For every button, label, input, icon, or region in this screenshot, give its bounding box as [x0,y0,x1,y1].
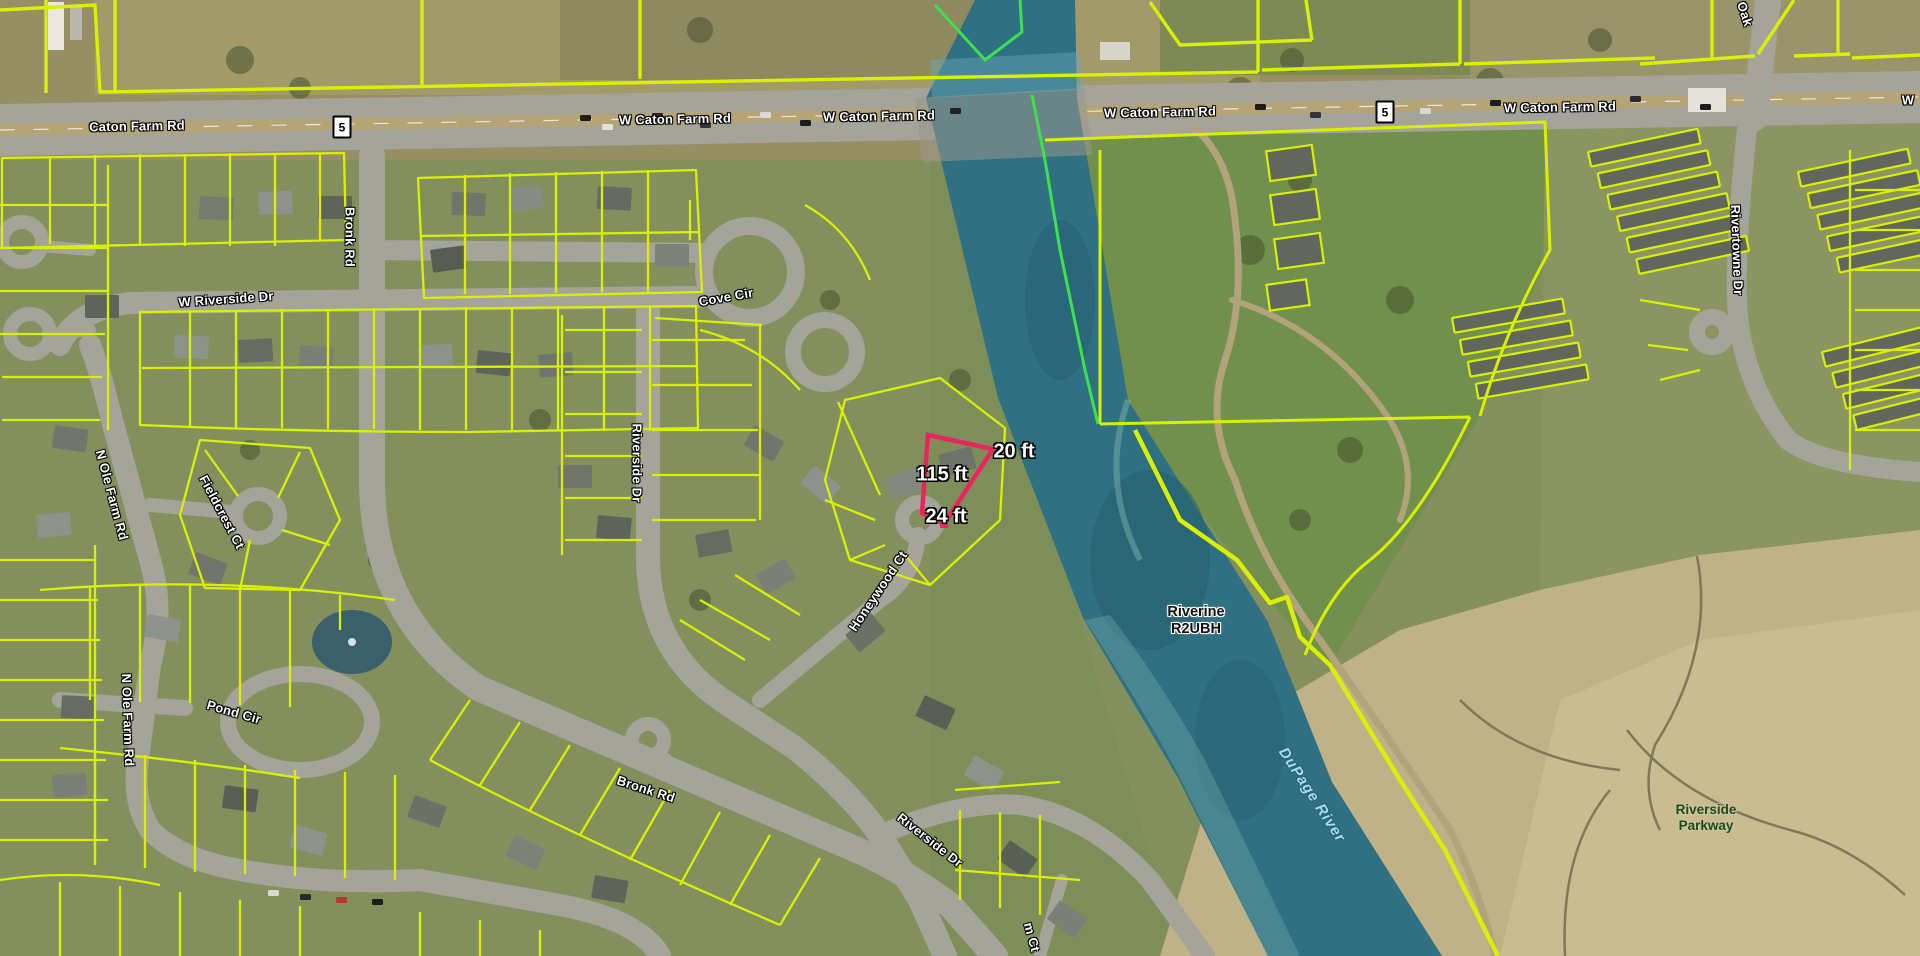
map-canvas [0,0,1920,956]
map-viewport[interactable]: Caton Farm Rd 5 W Caton Farm Rd W Caton … [0,0,1920,956]
measurement-vertex-handle[interactable] [940,520,948,528]
